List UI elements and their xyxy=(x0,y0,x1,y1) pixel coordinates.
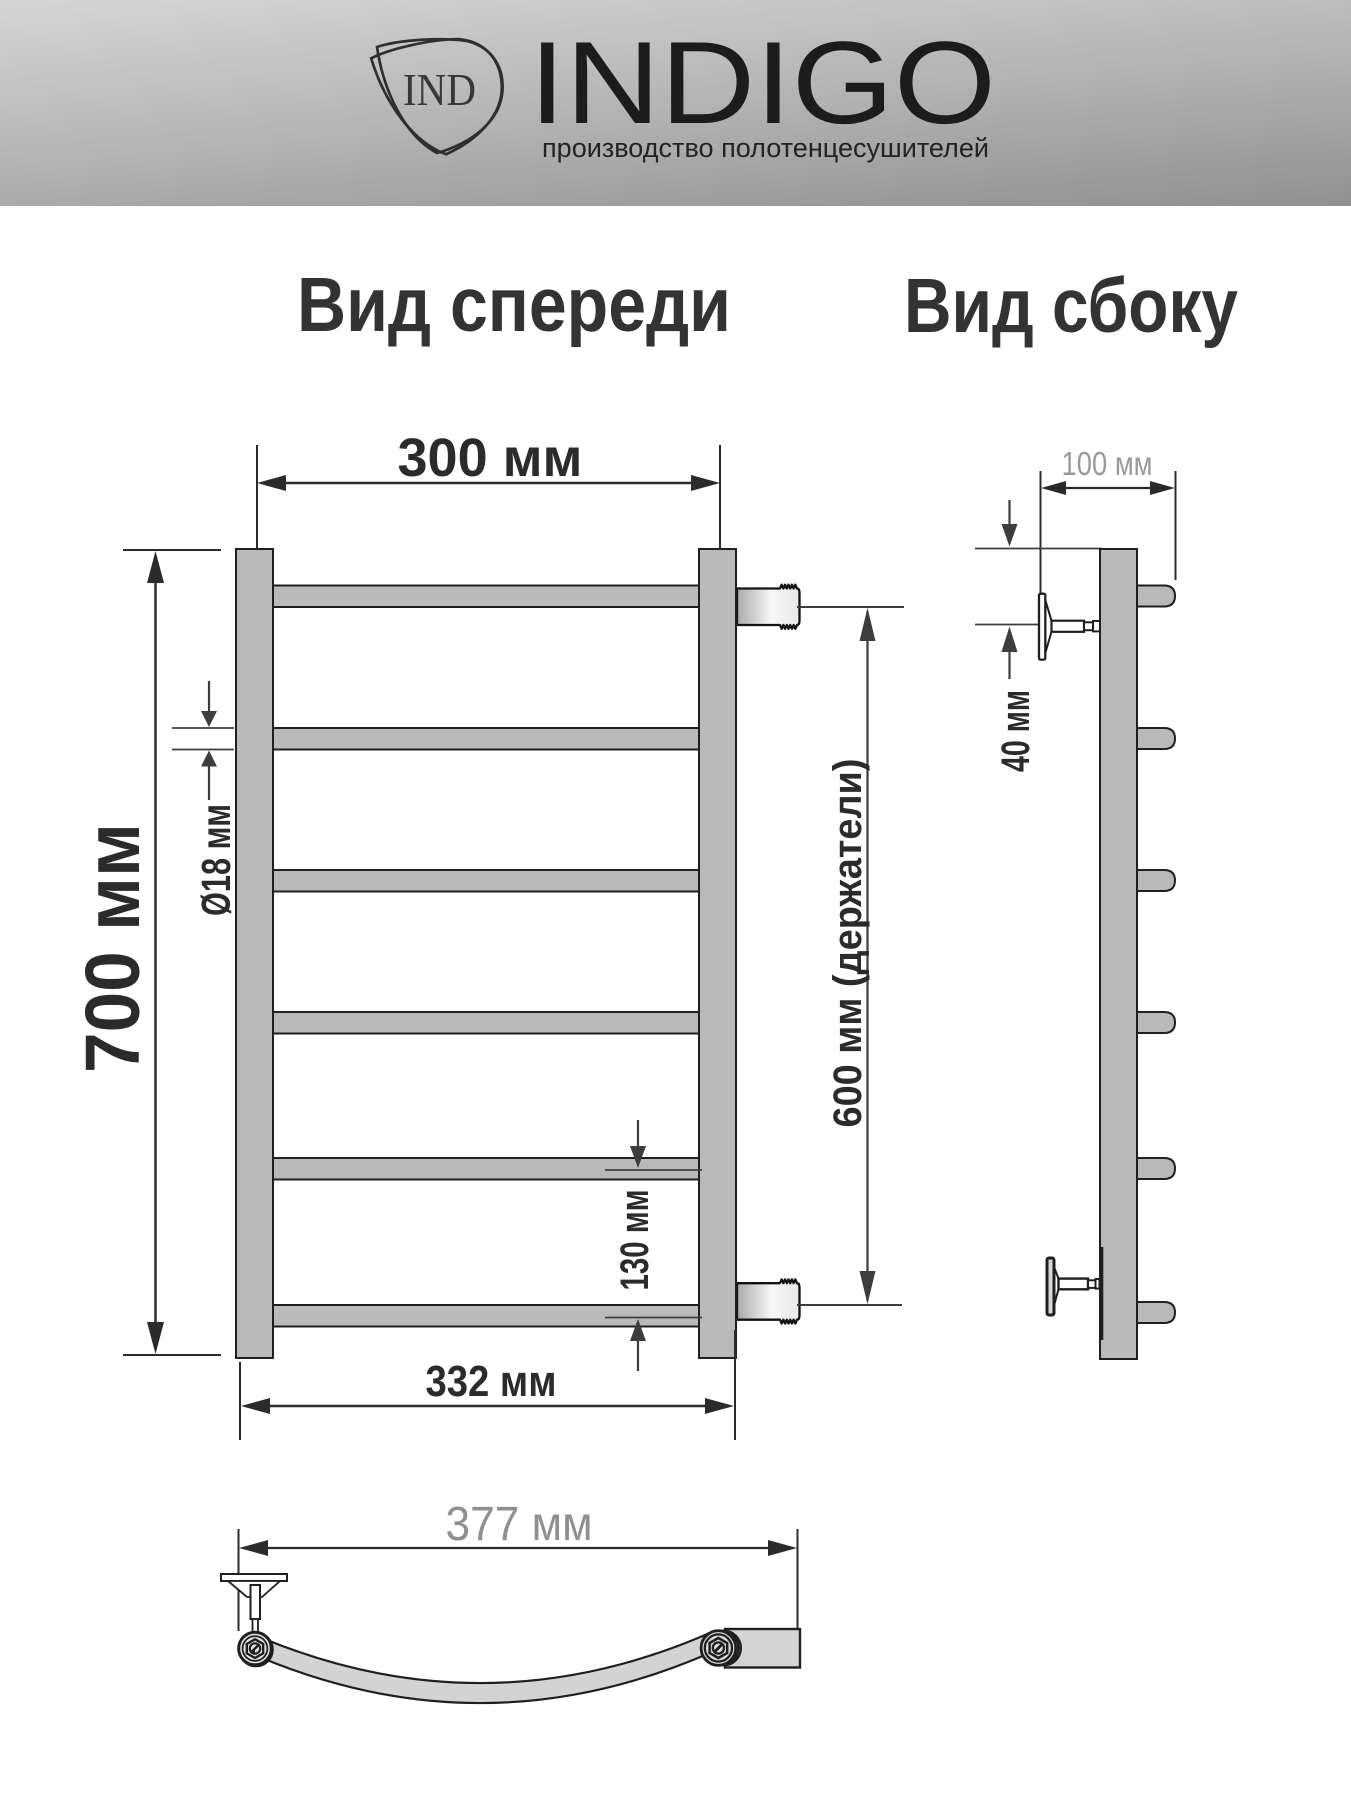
svg-text:332 мм: 332 мм xyxy=(426,1357,557,1406)
svg-text:130 мм: 130 мм xyxy=(613,1190,657,1291)
svg-text:700 мм: 700 мм xyxy=(70,823,156,1073)
svg-text:Вид спереди: Вид спереди xyxy=(297,262,731,348)
svg-text:600 мм (держатели): 600 мм (держатели) xyxy=(826,759,870,1128)
svg-text:300 мм: 300 мм xyxy=(398,428,583,488)
svg-text:100 мм: 100 мм xyxy=(1062,445,1153,482)
svg-text:производство полотенцесушителе: производство полотенцесушителей xyxy=(542,133,989,163)
svg-text:Ø18 мм: Ø18 мм xyxy=(193,804,239,916)
svg-text:INDIGO: INDIGO xyxy=(529,17,996,148)
svg-text:40 мм: 40 мм xyxy=(994,690,1038,772)
svg-text:IND: IND xyxy=(403,64,476,115)
svg-text:377 мм: 377 мм xyxy=(446,1498,593,1551)
svg-text:Вид сбоку: Вид сбоку xyxy=(904,263,1238,349)
